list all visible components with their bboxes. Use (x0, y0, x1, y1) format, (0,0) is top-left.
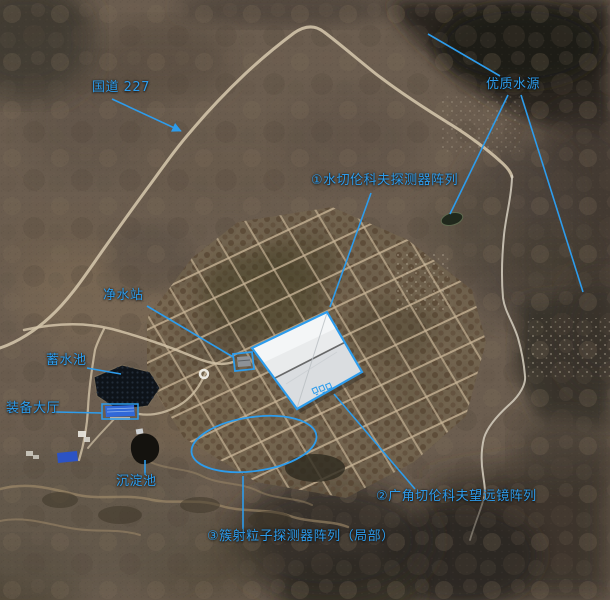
satellite-annotated-map: 国道 227 优质水源 ①水切伦科夫探测器阵列 净水站 蓄水池 装备大厅 沉淀池… (0, 0, 610, 600)
label-highway-227: 国道 227 (92, 81, 150, 96)
equipment-hall-callout-line (55, 412, 102, 413)
label-telescope-array-2: ②广角切伦科夫望远镜阵列 (376, 490, 537, 505)
label-purification-station: 净水站 (103, 289, 144, 304)
label-water-source: 优质水源 (486, 78, 540, 93)
label-shower-detector-3: ③簇射粒子探测器阵列（局部） (207, 530, 395, 545)
label-equipment-hall: 装备大厅 (6, 402, 60, 417)
label-detector-array-1: ①水切伦科夫探测器阵列 (311, 174, 458, 189)
blue-roof-building (57, 451, 78, 463)
label-reservoir: 蓄水池 (46, 354, 87, 369)
label-sedimentation-pool: 沉淀池 (116, 475, 157, 490)
purification-station-building (237, 356, 251, 367)
